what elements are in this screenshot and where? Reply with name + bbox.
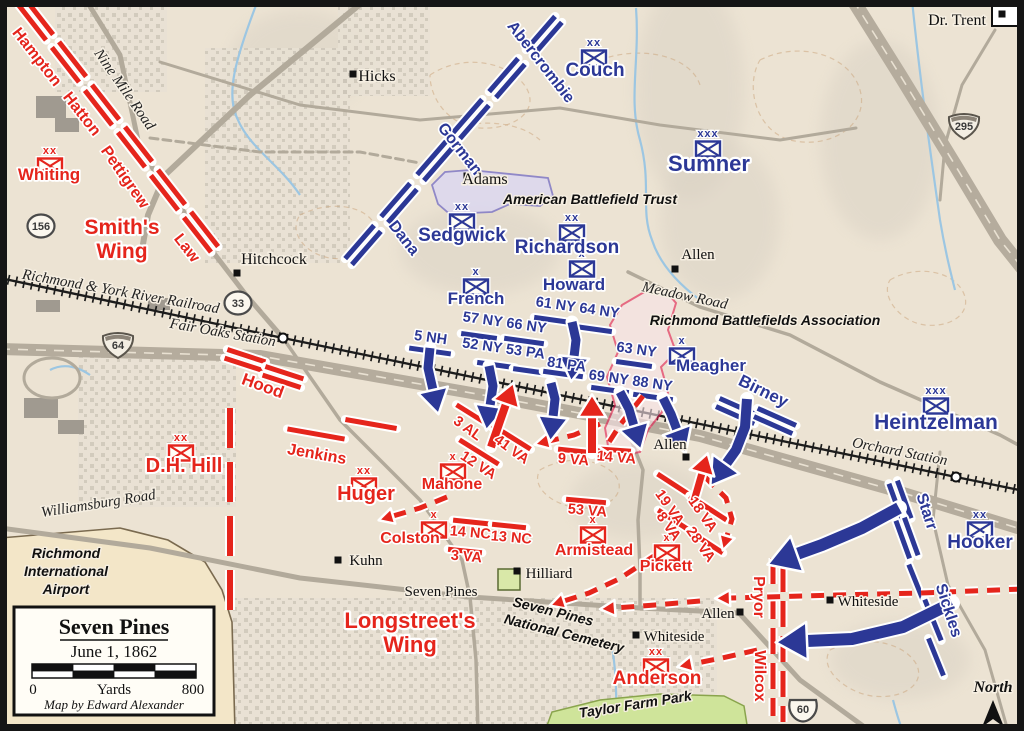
building	[58, 420, 84, 434]
union-attack-arrow	[551, 383, 555, 417]
label-whiting: Whiting	[18, 165, 80, 184]
echelon-mark: x	[430, 509, 437, 521]
echelon-mark: xxx	[697, 128, 718, 140]
label-meagher: Meagher	[676, 356, 746, 375]
label-hooker: Hooker	[947, 532, 1013, 553]
legend-date: June 1, 1862	[71, 642, 157, 661]
label-anderson: Anderson	[613, 668, 702, 689]
confederate-unit-bar	[492, 524, 526, 528]
echelon-mark: xx	[357, 465, 371, 477]
label-adams: Adams	[462, 171, 507, 188]
label-whiteside: Whiteside	[838, 594, 899, 610]
label-sedgwick: Sedgwick	[418, 225, 506, 246]
structure-square	[999, 11, 1006, 18]
label-heintzelman: Heintzelman	[874, 411, 998, 434]
label-richardson: Richardson	[515, 237, 620, 258]
echelon-mark: x	[678, 335, 685, 347]
echelon-mark: xx	[565, 212, 579, 224]
label-d-h-hill: D.H. Hill	[146, 455, 223, 477]
echelon-mark: x	[449, 451, 456, 463]
label-3-va: 3 VA	[450, 548, 483, 567]
echelon-mark: xxx	[925, 385, 946, 397]
structure-square	[827, 597, 834, 604]
legend-title: Seven Pines	[59, 614, 170, 639]
structure-square	[633, 632, 640, 639]
echelon-mark: xx	[649, 646, 663, 658]
route-shield-number: 33	[232, 298, 244, 310]
legend-box: Seven PinesJune 1, 18620Yards800Map by E…	[14, 607, 214, 715]
label-kuhn: Kuhn	[349, 553, 383, 569]
label-richmond: Richmond	[32, 545, 101, 561]
label-seven-pines: Seven Pines	[405, 584, 478, 600]
label-whiteside: Whiteside	[644, 629, 705, 645]
route-shield-number: 295	[955, 121, 973, 133]
label-wing: Wing	[96, 240, 147, 263]
label-dr-trent: Dr. Trent	[928, 12, 986, 29]
structure-square	[350, 71, 357, 78]
structure-square	[672, 266, 679, 273]
echelon-mark: xx	[587, 37, 601, 49]
battle-map: 156336429560xxxxxxxxxxxxxxxxxxxxxxxxxxxx…	[0, 0, 1024, 731]
label-north: North	[972, 679, 1012, 696]
label-allen: Allen	[701, 606, 735, 622]
legend-scale-start: 0	[29, 682, 37, 698]
legend-scale-unit: Yards	[97, 682, 131, 698]
terrain-shading	[820, 40, 940, 240]
corner-note-box	[992, 5, 1020, 26]
label-colston: Colston	[380, 530, 440, 547]
urban-area	[205, 48, 350, 263]
label-american-battlefield-trust: American Battlefield Trust	[502, 191, 678, 207]
label-sumner: Sumner	[668, 151, 750, 176]
structure-square	[737, 609, 744, 616]
label-allen: Allen	[653, 437, 687, 453]
structure-square	[514, 568, 521, 575]
echelon-mark: xx	[174, 432, 188, 444]
label-hicks: Hicks	[358, 68, 395, 85]
label-pickett: Pickett	[640, 558, 693, 575]
station-dot	[952, 473, 961, 482]
label-wing: Wing	[383, 632, 437, 657]
structure-square	[335, 557, 342, 564]
label-french: French	[448, 289, 505, 308]
legend-scale-end: 800	[182, 682, 205, 698]
legend-credit: Map by Edward Alexander	[43, 697, 185, 712]
echelon-mark: xx	[43, 145, 57, 157]
label-longstreet-s: Longstreet's	[344, 608, 475, 633]
station-dot	[279, 334, 288, 343]
route-shield-33: 33	[225, 292, 252, 315]
echelon-mark: xx	[973, 509, 987, 521]
label-wilcox: Wilcox	[751, 650, 768, 702]
label-hitchcock: Hitchcock	[241, 251, 307, 268]
label-richmond-battlefields-association: Richmond Battlefields Association	[650, 312, 881, 328]
label-pryor: Pryor	[750, 576, 767, 618]
structure-square	[683, 454, 690, 461]
building	[36, 300, 60, 312]
echelon-mark: xx	[455, 201, 469, 213]
label-hilliard: Hilliard	[526, 566, 573, 582]
route-shield-number: 60	[797, 704, 809, 716]
echelon-mark: x	[472, 266, 479, 278]
union-attack-arrow	[428, 348, 433, 390]
building	[24, 398, 58, 418]
label-howard: Howard	[543, 275, 605, 294]
label-airport: Airport	[42, 581, 91, 597]
route-shield-number: 156	[32, 221, 50, 233]
union-attack-arrow	[572, 322, 576, 357]
label-huger: Huger	[337, 483, 395, 505]
label-international: International	[24, 563, 109, 579]
route-shield-156: 156	[28, 215, 55, 238]
label-smith-s: Smith's	[84, 216, 159, 239]
structure-square	[234, 270, 241, 277]
urban-area	[78, 352, 236, 507]
label-couch: Couch	[565, 60, 624, 81]
label-allen: Allen	[681, 247, 715, 263]
label-mahone: Mahone	[422, 476, 483, 493]
route-shield-number: 64	[112, 340, 125, 352]
battle-map-page: 156336429560xxxxxxxxxxxxxxxxxxxxxxxxxxxx…	[0, 0, 1024, 731]
label-armistead: Armistead	[555, 542, 633, 559]
label-9-va: 9 VA	[557, 451, 590, 470]
